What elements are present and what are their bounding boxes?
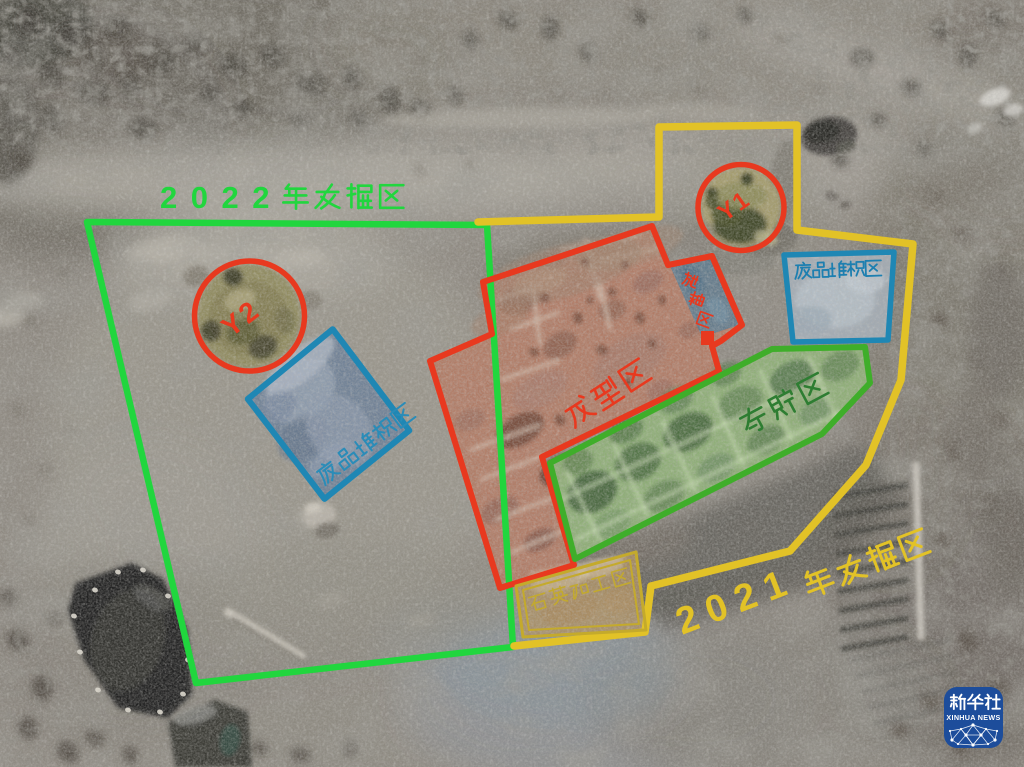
svg-text:XINHUA NEWS: XINHUA NEWS xyxy=(946,713,1000,722)
svg-text:2022: 2022 xyxy=(160,180,283,215)
